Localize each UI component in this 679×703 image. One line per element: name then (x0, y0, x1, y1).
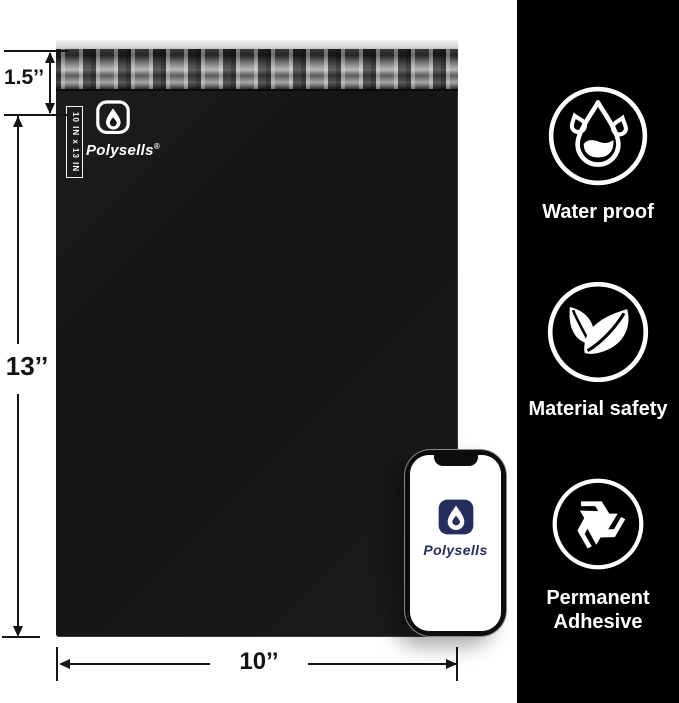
flap-dim-arrow-down (45, 103, 55, 114)
width-dim-line-left (62, 663, 210, 665)
poly-mailer-bag: 10 IN x 13 IN Polysells® (56, 40, 458, 637)
feature-label-waterproof: Water proof (542, 200, 653, 224)
width-dim-line-right (308, 663, 456, 665)
width-dim-arrow-left (59, 659, 70, 669)
product-infographic: 10 IN x 13 IN Polysells® Polysells 1.5’’ (0, 0, 679, 703)
feature-permanent-adhesive: Permanent Adhesive (517, 476, 679, 634)
recycle-icon (550, 476, 646, 572)
flap-height-label: 1.5’’ (0, 66, 48, 90)
height-dim-arrow-up (13, 116, 23, 127)
phone-notch (434, 455, 478, 466)
polysells-logo-phone-icon (436, 495, 476, 539)
height-dim-line-upper (17, 116, 19, 344)
bag-width-label: 10’’ (210, 648, 308, 676)
feature-waterproof: Water proof (517, 84, 679, 224)
width-dim-tick-left (56, 647, 58, 681)
phone-screen: Polysells (410, 455, 501, 631)
height-dim-line-lower (17, 394, 19, 628)
bag-size-tag: 10 IN x 13 IN (66, 106, 83, 178)
bag-brand-text: Polysells® (86, 142, 160, 159)
leaves-icon (545, 279, 651, 385)
height-dim-tick-bottom (2, 636, 40, 638)
phone-mockup: Polysells (405, 450, 506, 636)
polysells-logo-icon (94, 98, 132, 144)
bag-adhesive-seal-strip (56, 49, 458, 91)
phone-brand-text: Polysells (423, 542, 487, 558)
brand-name: Polysells (86, 142, 154, 159)
width-dim-arrow-right (446, 659, 457, 669)
registered-mark: ® (154, 142, 160, 151)
feature-label-material-safety: Material safety (529, 397, 668, 421)
feature-material-safety: Material safety (517, 279, 679, 421)
feature-sidebar: Water proof Material safety Perma (517, 0, 679, 703)
flap-dim-arrow-up (45, 52, 55, 63)
feature-label-permanent-adhesive: Permanent Adhesive (523, 586, 673, 634)
flap-dim-tick-top (4, 50, 68, 52)
bag-top-fold (56, 40, 458, 49)
water-drop-icon (546, 84, 650, 188)
bag-height-label: 13’’ (0, 351, 54, 382)
